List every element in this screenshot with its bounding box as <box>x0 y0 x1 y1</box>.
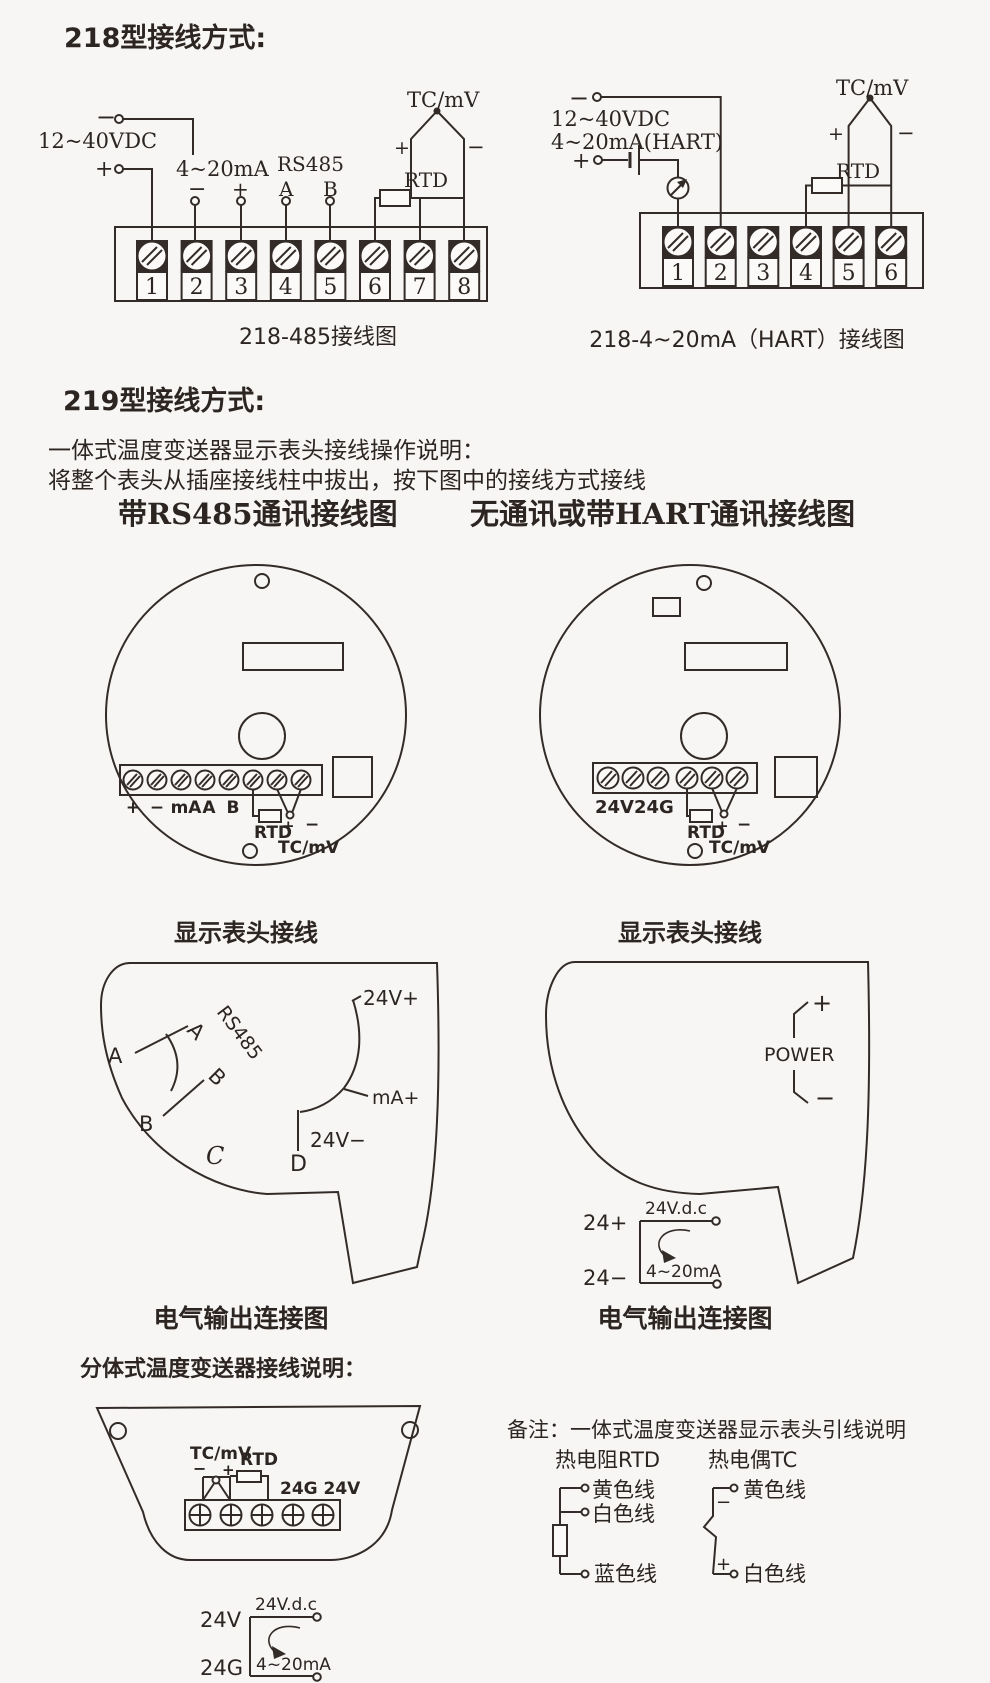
wiring-manual-page: 218型接线方式: <box>0 0 990 1683</box>
tc-plus-label: + <box>394 137 410 159</box>
note-title: 备注：一体式温度变送器显示表头引线说明 <box>507 1418 906 1442</box>
ma-plus-label: mA+ <box>372 1087 419 1109</box>
rtd-white-wire-label: 白色线 <box>592 1502 655 1526</box>
v-plus-label: 24V+ <box>363 986 419 1010</box>
terminal-block-218-485: 1 2 3 4 5 6 7 8 <box>115 227 487 301</box>
terminal-block-218-hart: 1 2 3 4 5 6 <box>640 213 923 288</box>
supply-plus-label: + <box>95 157 113 182</box>
loop-plus-label: + <box>232 177 249 201</box>
desc-line-1: 一体式温度变送器显示表头接线操作说明： <box>48 438 485 464</box>
loop-label: 4~20mA <box>646 1262 721 1282</box>
vdc-label: 24V.d.c <box>255 1595 317 1615</box>
tc-minus-label: − <box>305 815 319 835</box>
terminal-number: 4 <box>279 275 293 300</box>
tcmv-label: TC/mV <box>836 76 909 100</box>
terminal-number: 7 <box>413 275 427 300</box>
rtd-resistor-icon <box>253 789 281 822</box>
caption-218-hart: 218-4~20mA（HART）接线图 <box>589 328 905 353</box>
pin-b-rotated-label: B <box>203 1064 230 1091</box>
header-rs485-head: 带RS485通讯接线图 <box>118 497 398 531</box>
terminal-number: 8 <box>457 275 471 300</box>
diagram-218-485: 1 2 3 4 5 6 7 8 − 12~40VDC + 4~20mA − + … <box>38 88 487 350</box>
supply-minus-label: − <box>96 103 116 131</box>
rtd-lead-sketch <box>553 1485 589 1578</box>
tc-minus-label: − <box>737 815 751 835</box>
supply-range-label: 12~40VDC <box>551 107 670 131</box>
header-hart-head: 无通讯或带HART通讯接线图 <box>470 497 855 531</box>
caption-display-head-right: 显示表头接线 <box>618 919 762 947</box>
terminal-number: 4 <box>799 261 813 286</box>
terminal-number: 3 <box>234 275 248 300</box>
tc-plus-label: + <box>828 123 844 145</box>
rs485-label: RS485 <box>277 152 344 176</box>
caption-output-right: 电气输出连接图 <box>597 1304 772 1333</box>
loop-label: 4~20mA <box>256 1655 331 1675</box>
power-label: POWER <box>764 1044 834 1066</box>
split-title: 分体式温度变送器接线说明： <box>80 1356 366 1382</box>
desc-line-2: 将整个表头从插座接线柱中拔出，按下图中的接线方式接线 <box>48 468 646 494</box>
tc-minus-label: − <box>193 1459 206 1478</box>
rs485-a-label: A <box>278 177 294 201</box>
p24-label: 24+ <box>583 1211 627 1235</box>
wiring-diagrams-canvas: 218型接线方式: <box>0 0 990 1683</box>
power-plus-label: + <box>812 989 832 1017</box>
diagram-218-hart: 1 2 3 4 5 6 − 12~40VDC 4~20mA(HART) + TC… <box>551 76 923 353</box>
pin-ma-label: mA <box>171 798 203 818</box>
pin-c-label: C <box>206 1142 224 1170</box>
pin-d-label: D <box>290 1152 307 1177</box>
tc-white-wire-label: 白色线 <box>743 1562 806 1586</box>
tc-plus-label: + <box>222 1461 235 1479</box>
lead-wire-note: 备注：一体式温度变送器显示表头引线说明 热电阻RTD 热电偶TC 黄色线 白色线… <box>507 1418 906 1586</box>
terminal-number: 2 <box>190 275 204 300</box>
tcmv-label: TC/mV <box>407 88 480 112</box>
tc-plus-label: + <box>282 817 295 835</box>
terminal-number: 5 <box>842 261 856 286</box>
tc-plus-label: + <box>716 1554 731 1575</box>
rtd-yellow-wire-label: 黄色线 <box>592 1478 655 1502</box>
supply-range-label: 12~40VDC <box>38 129 157 153</box>
split-transmitter-socket: TC/mV RTD − + 24G 24V <box>97 1406 420 1560</box>
tc-column-header: 热电偶TC <box>708 1448 797 1472</box>
loop-minus-label: − <box>188 177 206 202</box>
tc-yellow-wire-label: 黄色线 <box>743 1478 806 1502</box>
pin-a-label: A <box>202 798 216 818</box>
caption-218-485: 218-485接线图 <box>239 325 397 350</box>
tc-plus-label: + <box>716 817 729 835</box>
pin-b-label: B <box>227 798 240 818</box>
tcmv-label: TC/mV <box>709 838 771 858</box>
output-connector-rs485: A A RS485 B B C D 24V+ mA+ 24V− <box>101 963 439 1283</box>
loop-output-sketch-right: 24V.d.c 24+ 4~20mA 24− <box>583 1199 721 1290</box>
rtd-resistor-icon <box>375 190 464 240</box>
caption-display-head-left: 显示表头接线 <box>174 919 318 947</box>
rtd-blue-wire-label: 蓝色线 <box>594 1562 657 1586</box>
loop-output-sketch-bottom: 24V.d.c 24V 4~20mA 24G <box>200 1595 331 1681</box>
vdc-label: 24V.d.c <box>645 1199 707 1219</box>
pin-minus-label: − <box>150 798 164 818</box>
thermocouple-icon <box>203 1477 230 1501</box>
title-218: 218型接线方式: <box>64 22 266 54</box>
tc-minus-label: − <box>897 121 915 145</box>
ammeter-icon <box>668 178 689 199</box>
terminal-number: 3 <box>756 261 770 286</box>
rtd-label: RTD <box>240 1450 278 1470</box>
terminal-number: 1 <box>671 261 685 286</box>
g24-label: 24G <box>200 1656 243 1680</box>
terminal-number: 6 <box>368 275 382 300</box>
rtd-resistor-icon <box>230 1471 268 1500</box>
tc-minus-label: − <box>467 135 485 159</box>
title-219: 219型接线方式: <box>63 385 265 417</box>
terminal-number: 2 <box>714 261 728 286</box>
rs485-b-label: B <box>323 177 338 201</box>
pin-a-rotated-label: A <box>182 1018 210 1046</box>
rs485-rotated-label: RS485 <box>212 1002 267 1064</box>
n24-label: 24− <box>583 1266 627 1290</box>
rtd-label: RTD <box>404 168 448 192</box>
caption-output-left: 电气输出连接图 <box>153 1304 328 1333</box>
terminal-number: 5 <box>323 275 337 300</box>
pin-plus-label: + <box>126 798 140 818</box>
display-head-hart: 24V24G RTD + − TC/mV <box>540 565 840 865</box>
power-minus-label: − <box>815 1084 835 1112</box>
pin-b-label: B <box>139 1112 153 1136</box>
terminal-number: 6 <box>884 261 898 286</box>
terminal-number: 1 <box>145 275 159 300</box>
pin-a-label: A <box>108 1044 123 1068</box>
rtd-column-header: 热电阻RTD <box>555 1448 660 1472</box>
rtd-label: RTD <box>836 159 880 183</box>
v24-label: 24V <box>200 1608 242 1632</box>
power-pins-label: 24G 24V <box>280 1479 361 1499</box>
power-pins-label: 24V24G <box>595 797 674 818</box>
tc-minus-label: − <box>716 1492 731 1513</box>
display-head-rs485: + − mA A B RTD + − TC/mV <box>106 565 406 865</box>
tcmv-label: TC/mV <box>278 838 340 858</box>
v-minus-label: 24V− <box>310 1128 366 1152</box>
supply-plus-label: + <box>572 149 590 174</box>
